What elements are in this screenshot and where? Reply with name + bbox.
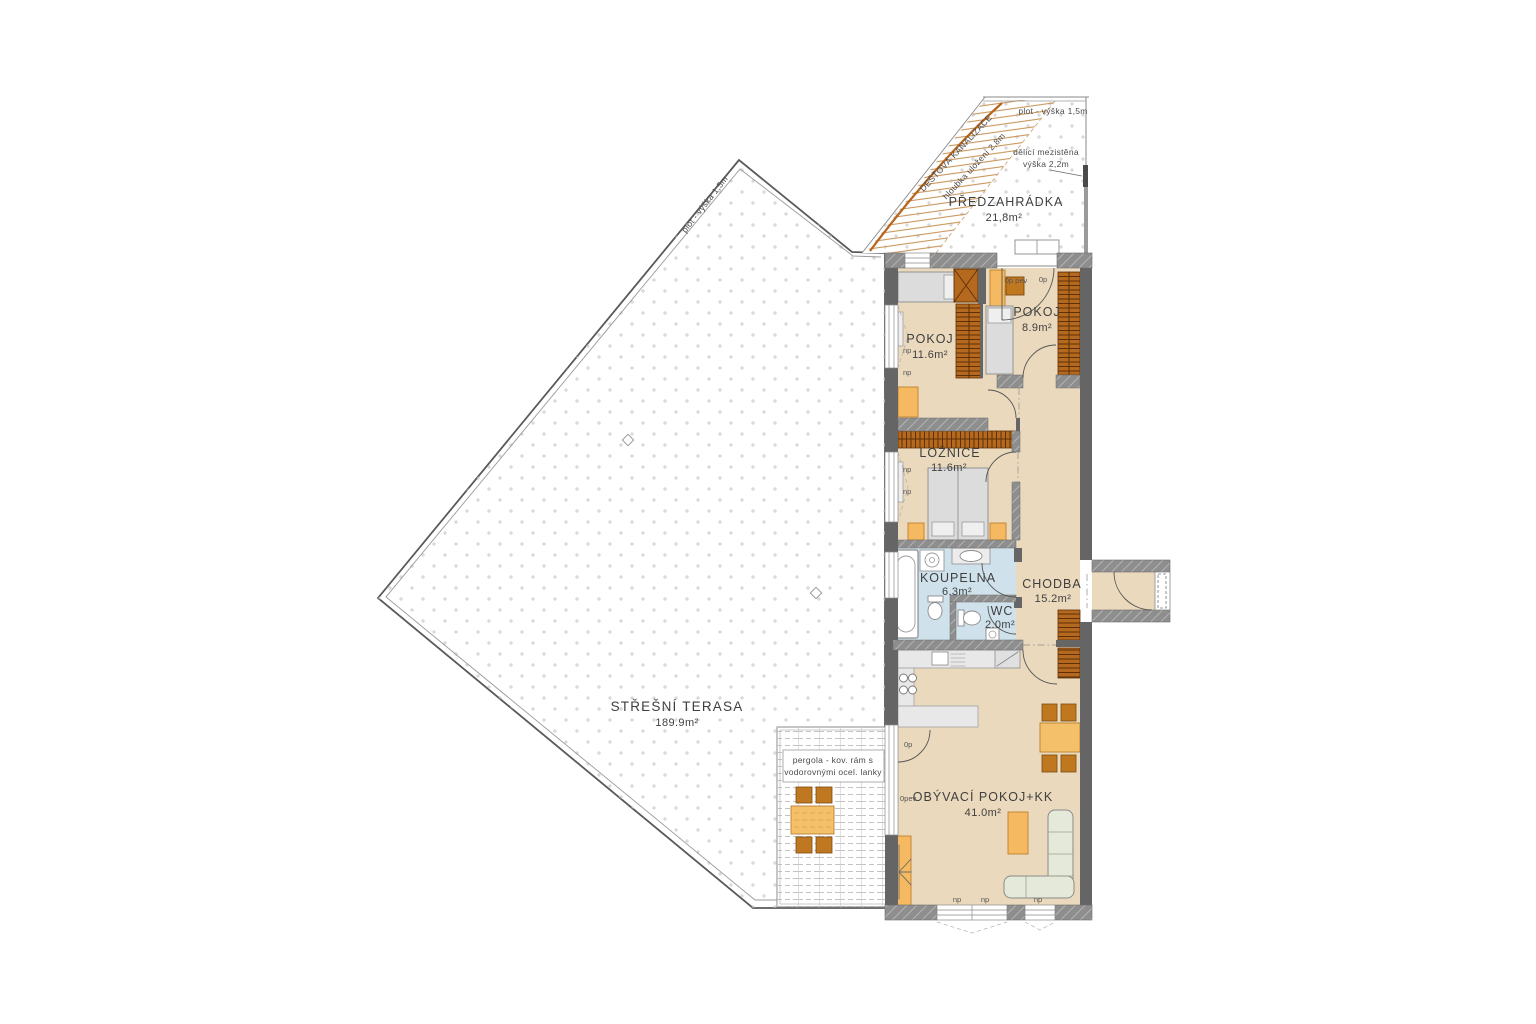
exterior-wall bbox=[1080, 261, 1092, 560]
toilet-tank bbox=[928, 596, 943, 602]
floor-plan-page: STŘEŠNÍ TERASA 189.9m² plot - výška 1,5m… bbox=[0, 0, 1536, 1024]
desk bbox=[898, 387, 918, 417]
partition-wall bbox=[1012, 482, 1020, 540]
partition-label-1: dělicí mezistěna bbox=[1013, 147, 1079, 157]
nightstand bbox=[990, 523, 1006, 540]
room-area-pokoj1: 11.6m² bbox=[912, 349, 948, 361]
partition-wall-thin bbox=[980, 304, 983, 378]
partition-wall bbox=[1012, 431, 1020, 452]
room-area-loznice: 11.6m² bbox=[931, 462, 967, 474]
room-area-wc: 2.0m² bbox=[985, 619, 1015, 631]
window-label: np bbox=[1034, 895, 1042, 904]
window bbox=[1025, 905, 1055, 930]
floor-plan-drawing: STŘEŠNÍ TERASA 189.9m² plot - výška 1,5m… bbox=[0, 0, 1536, 1024]
window-label: np bbox=[981, 895, 989, 904]
vestibule-floor bbox=[1092, 572, 1158, 610]
door-label: 0p bbox=[904, 740, 912, 749]
outdoor-chair bbox=[816, 837, 832, 853]
vestibule-wall bbox=[1092, 560, 1170, 572]
vestibule-wall bbox=[1092, 610, 1170, 622]
exterior-wall bbox=[1080, 622, 1092, 920]
pillow bbox=[988, 308, 1011, 323]
front-garden: plot - výška 1,5m dělicí mezistěna výška… bbox=[862, 97, 1089, 254]
room-name-loznice: LOŽNICE bbox=[919, 445, 980, 460]
exterior-wall-top bbox=[930, 253, 997, 268]
partition-label-2: výška 2,2m bbox=[1023, 159, 1069, 169]
room-name-koupelna: KOUPELNA bbox=[920, 571, 996, 585]
exterior-wall-bottom bbox=[1007, 905, 1025, 920]
exterior-wall-top bbox=[885, 253, 905, 268]
room-area-chodba: 15.2m² bbox=[1035, 593, 1072, 605]
window-label: np bbox=[903, 465, 911, 474]
pergola: pergola - kov. rám s vodorovnými ocel. l… bbox=[777, 727, 890, 907]
shelf-unit bbox=[990, 270, 1005, 306]
outdoor-chair bbox=[796, 787, 812, 803]
window-label: np bbox=[903, 368, 911, 377]
terrace-name: STŘEŠNÍ TERASA bbox=[611, 699, 744, 714]
room-name-obyvaci: OBÝVACÍ POKOJ+KK bbox=[913, 789, 1053, 804]
room-name-chodba: CHODBA bbox=[1022, 577, 1081, 591]
dividing-partition-wall-lower bbox=[1084, 187, 1088, 253]
door-label: 0p bbox=[1039, 275, 1047, 284]
partition-wall bbox=[1056, 640, 1080, 647]
window bbox=[937, 905, 1007, 933]
dining-chair bbox=[1061, 704, 1076, 721]
kitchen-sink bbox=[932, 652, 948, 665]
outdoor-chair bbox=[816, 787, 832, 803]
partition-wall bbox=[1016, 418, 1020, 431]
pergola-note-2: vodorovnými ocel. lanky bbox=[784, 767, 882, 777]
nightstand bbox=[908, 523, 924, 540]
wardrobe-box bbox=[1058, 648, 1080, 678]
partition-wall bbox=[893, 640, 1023, 650]
dining-table bbox=[1040, 723, 1080, 752]
room-area-obyvaci: 41.0m² bbox=[965, 807, 1002, 819]
pillow bbox=[962, 522, 984, 536]
terrace-area: 189.9m² bbox=[655, 717, 698, 729]
exterior-wall bbox=[885, 598, 898, 725]
wardrobe-box bbox=[1058, 610, 1080, 640]
window bbox=[885, 552, 898, 598]
dining-chair bbox=[1042, 755, 1057, 772]
partition-wall bbox=[978, 268, 986, 304]
pillow bbox=[932, 522, 954, 536]
room-area-pokoj2: 8.9m² bbox=[1022, 322, 1052, 334]
door-label: 0p pev bbox=[1005, 276, 1028, 285]
partition-wall bbox=[898, 418, 988, 431]
dividing-partition-wall bbox=[1083, 165, 1088, 187]
garden-name: PŘEDZAHRÁDKA bbox=[949, 194, 1064, 209]
partition-wall bbox=[950, 602, 956, 645]
window-label: np bbox=[903, 346, 911, 355]
toilet-bowl bbox=[928, 603, 942, 620]
outdoor-chair bbox=[796, 837, 812, 853]
room-name-wc: WC bbox=[991, 604, 1014, 618]
radiator bbox=[898, 312, 903, 346]
pergola-note-1: pergola - kov. rám s bbox=[793, 755, 873, 765]
partition-wall bbox=[997, 375, 1023, 388]
garden-area: 21,8m² bbox=[986, 212, 1023, 224]
window-label: np bbox=[903, 487, 911, 496]
window bbox=[905, 253, 930, 268]
exterior-wall bbox=[885, 368, 898, 452]
dining-chair bbox=[1061, 755, 1076, 772]
room-name-pokoj1: POKOJ bbox=[906, 332, 953, 346]
garden-fence-label: plot - výška 1,5m bbox=[1018, 106, 1087, 116]
room-area-koupelna: 6.3m² bbox=[942, 586, 972, 598]
partition-wall bbox=[1014, 548, 1022, 562]
sink-basin bbox=[960, 551, 982, 562]
coffee-table bbox=[1008, 812, 1028, 854]
door-label: 0pev bbox=[900, 794, 917, 803]
toilet-bowl bbox=[964, 611, 981, 625]
exterior-wall bbox=[885, 522, 898, 552]
partition-wall bbox=[898, 540, 1016, 548]
room-name-pokoj2: POKOJ bbox=[1013, 305, 1060, 319]
window-label: np bbox=[953, 895, 961, 904]
partition-wall bbox=[1056, 375, 1080, 388]
kitchen-peninsula bbox=[898, 706, 978, 727]
exterior-wall-bottom bbox=[1055, 905, 1092, 920]
exterior-wall-top bbox=[1057, 253, 1092, 268]
exterior-wall-bottom bbox=[885, 905, 937, 920]
dining-chair bbox=[1042, 704, 1057, 721]
